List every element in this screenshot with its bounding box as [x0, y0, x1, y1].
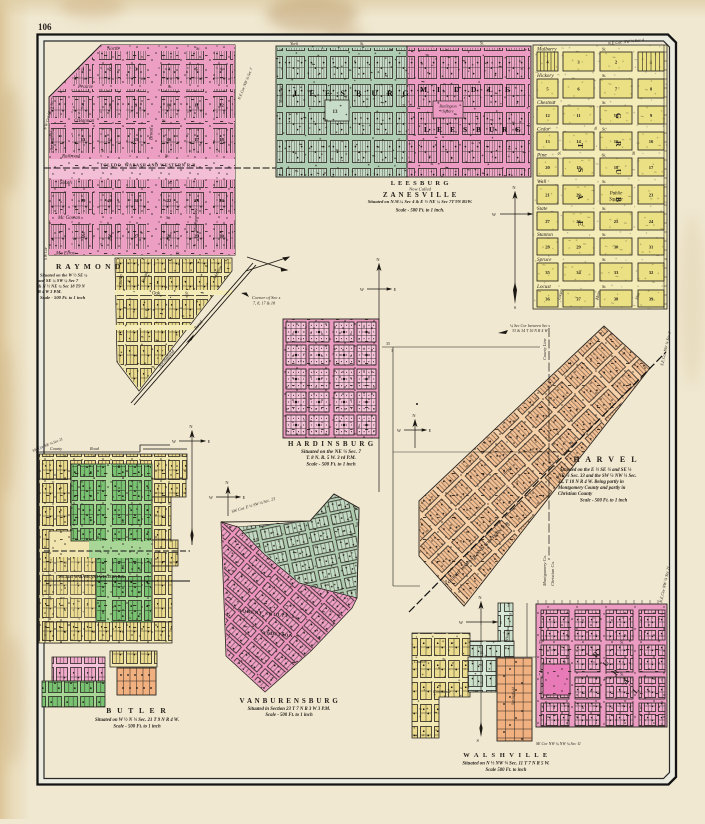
svg-text:Situated on W ½ N ¼ Sec. 21: Situated on W ½ N ¼ Sec. 21 T 9 N R 4 W.: [95, 718, 179, 723]
svg-text:E: E: [394, 287, 397, 292]
svg-text:Z A N E S V I L L E: Z A N E S V I L L E: [383, 191, 457, 199]
svg-text:Situated on the NE ¼ Sec. 7: Situated on the NE ¼ Sec. 7: [301, 449, 361, 455]
svg-text:Situated in Section 23 T 7 N R: Situated in Section 23 T 7 N R 3 W 3 P.M…: [248, 707, 331, 712]
svg-text:H A R D I N S B U R G: H A R D I N S B U R G: [288, 440, 374, 448]
svg-text:E: E: [208, 439, 211, 444]
svg-text:34, T 10 N R 4 W. Being partly: 34, T 10 N R 4 W. Being partly in: [557, 480, 624, 485]
svg-text:Situated on N ½ NW ¼ Sec. 1: Situated on N ½ NW ¼ Sec. 11 T 7 N R 5 W…: [462, 762, 549, 767]
svg-text:Road: Road: [89, 446, 100, 451]
svg-text:S W Cor: S W Cor: [44, 247, 48, 260]
svg-text:T. 8 N. R. 5 W. 3 rd P.M.: T. 8 N. R. 5 W. 3 rd P.M.: [306, 456, 356, 461]
svg-text:3: 3: [391, 348, 393, 353]
svg-text:35: 35: [386, 341, 390, 346]
svg-text:E: E: [243, 495, 246, 500]
svg-text:St.: St.: [480, 41, 484, 46]
svg-text:Christian Co.: Christian Co.: [550, 561, 555, 586]
svg-text:Scale - 500 Ft. to 1 inch: Scale - 500 Ft. to 1 inch: [580, 499, 628, 504]
svg-text:SE Cor NW ¼ NW ¼ Sec 11: SE Cor NW ¼ NW ¼ Sec 11: [536, 741, 581, 746]
svg-text:Scale - 500 Ft. to 1 inch: Scale - 500 Ft. to 1 inch: [306, 463, 356, 468]
svg-text:106: 106: [38, 22, 52, 32]
svg-text:Montgomery Co.: Montgomery Co.: [542, 555, 547, 587]
svg-text:V A N B U R E N S B U R G: V A N B U R E N S B U R G: [240, 697, 339, 705]
svg-text:Corner of Sec s: Corner of Sec s: [252, 295, 281, 300]
svg-text:and SE ¼ SW ¼ Sec 7: and SE ¼ SW ¼ Sec 7: [38, 278, 79, 283]
svg-text:H A R V E L: H A R V E L: [573, 455, 638, 464]
svg-text:Scale - 500 Ft. to 1 inch: Scale - 500 Ft. to 1 inch: [113, 725, 161, 730]
svg-text:R A Y M O N D: R A Y M O N D: [56, 262, 121, 271]
svg-text:Situated on N.W.¼ Sec 4 & E ½: Situated on N.W.¼ Sec 4 & E ½ NE ¼ Sec 7…: [368, 199, 473, 204]
svg-text:County: County: [50, 446, 62, 451]
svg-text:NE ¼ Sec. 33 and the SW ¼ NW: NE ¼ Sec. 33 and the SW ¼ NW ¼ Sec.: [557, 474, 637, 479]
svg-text:& N ½ NE ¼ Sec 18 T9 N: & N ½ NE ¼ Sec 18 T9 N: [38, 284, 86, 289]
svg-text:W A L S H V I L L E: W A L S H V I L L E: [463, 752, 548, 759]
svg-text:St.: St.: [360, 41, 364, 46]
svg-text:Situated on the W ½ SE ¼: Situated on the W ½ SE ¼: [40, 273, 88, 278]
svg-text:Montgomery County and partly i: Montgomery County and partly in: [557, 486, 626, 491]
svg-text:York: York: [290, 41, 299, 46]
svg-text:B U T L E R: B U T L E R: [106, 706, 168, 715]
svg-text:Springfield: Springfield: [510, 686, 516, 705]
svg-text:County Line: County Line: [542, 338, 547, 360]
svg-text:Scale - 500 Ft. to 1 inch: Scale - 500 Ft. to 1 inch: [40, 295, 86, 300]
svg-text:Scale - 500 Ft. to 1 inch.: Scale - 500 Ft. to 1 inch.: [396, 209, 445, 214]
svg-text:E: E: [429, 428, 432, 433]
svg-text:Scale 500 Ft. to inch: Scale 500 Ft. to inch: [486, 768, 527, 773]
svg-text:33 & 34 T 10 N R 4 W: 33 & 34 T 10 N R 4 W: [512, 328, 548, 333]
svg-text:Christian County: Christian County: [558, 492, 593, 497]
svg-text:Scale - 500 Ft. to 1 inch: Scale - 500 Ft. to 1 inch: [265, 713, 313, 718]
svg-text:R 4 W 3 P.M.: R 4 W 3 P.M.: [38, 289, 62, 294]
